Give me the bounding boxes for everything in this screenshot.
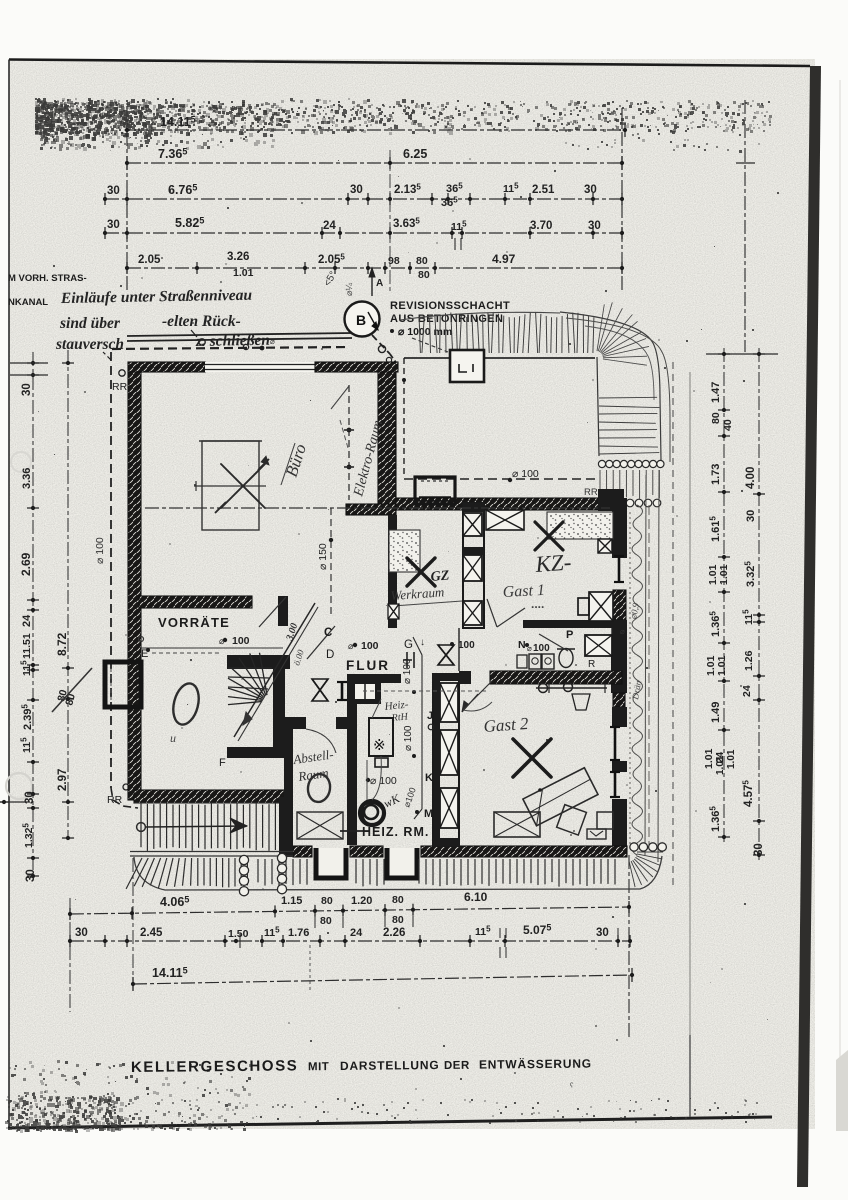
- svg-text:u: u: [170, 731, 176, 745]
- svg-text:VORRÄTE: VORRÄTE: [158, 615, 230, 630]
- svg-text:6.10: 6.10: [464, 890, 488, 904]
- svg-text:30: 30: [107, 219, 120, 231]
- svg-text:F: F: [219, 757, 226, 769]
- svg-text:24: 24: [741, 685, 753, 697]
- svg-text:2.51: 2.51: [532, 184, 555, 196]
- svg-text:1.73: 1.73: [710, 464, 722, 485]
- svg-text:HEIZ. RM.: HEIZ. RM.: [362, 825, 429, 839]
- svg-text:⌀ 100: ⌀ 100: [403, 725, 414, 751]
- svg-text:30: 30: [350, 184, 363, 196]
- svg-text:REVISIONSSCHACHT: REVISIONSSCHACHT: [390, 300, 510, 312]
- svg-text:100: 100: [458, 640, 475, 651]
- svg-text:KELLERGESCHOSS: KELLERGESCHOSS: [131, 1057, 299, 1076]
- svg-text:-elten Rück-: -elten Rück-: [162, 313, 241, 330]
- svg-text:2.97: 2.97: [57, 769, 69, 791]
- svg-text:100: 100: [232, 635, 250, 647]
- svg-text:30: 30: [753, 843, 765, 856]
- svg-text:80: 80: [321, 895, 333, 907]
- svg-text:30: 30: [75, 927, 88, 939]
- svg-text:100: 100: [533, 643, 550, 654]
- svg-text:K: K: [425, 772, 433, 784]
- svg-text:B: B: [356, 312, 366, 328]
- svg-text:2.69: 2.69: [19, 552, 33, 576]
- svg-text:M: M: [424, 808, 433, 820]
- svg-text:80: 80: [392, 894, 404, 906]
- svg-text:Gast 2: Gast 2: [483, 714, 530, 736]
- svg-text:G: G: [404, 639, 413, 651]
- svg-text:80: 80: [418, 269, 430, 281]
- svg-text:1.01: 1.01: [726, 749, 737, 769]
- svg-text:1.01: 1.01: [716, 655, 728, 676]
- svg-text:1.50: 1.50: [228, 928, 249, 940]
- svg-text:14.115: 14.115: [152, 966, 188, 981]
- svg-text:40: 40: [722, 419, 734, 431]
- svg-text:ˁ: ˁ: [570, 1081, 574, 1093]
- svg-text:A: A: [376, 278, 383, 289]
- svg-text:14.115: 14.115: [160, 115, 196, 130]
- svg-text:Einläufe unter Straßenniveau: Einläufe unter Straßenniveau: [60, 287, 253, 307]
- svg-text:30: 30: [25, 869, 37, 882]
- svg-text:J: J: [427, 710, 433, 722]
- svg-text:⌀ 150: ⌀ 150: [317, 543, 329, 570]
- svg-text:⌀: ⌀: [348, 641, 354, 651]
- svg-text:30: 30: [107, 185, 120, 197]
- svg-text:11.51: 11.51: [21, 633, 33, 659]
- svg-text:DARSTELLUNG: DARSTELLUNG: [340, 1058, 440, 1073]
- svg-text:2.05: 2.05: [138, 254, 161, 266]
- svg-text:RR: RR: [107, 794, 123, 806]
- svg-text:ENTWÄSSERUNG: ENTWÄSSERUNG: [479, 1056, 592, 1072]
- svg-text:⌀ 100: ⌀ 100: [512, 468, 539, 480]
- svg-text:M VORH. STRAS-: M VORH. STRAS-: [8, 273, 87, 284]
- svg-text:P: P: [566, 629, 573, 641]
- svg-text:80: 80: [416, 255, 428, 267]
- svg-text:※: ※: [373, 737, 386, 754]
- svg-text:⌀: ⌀: [620, 627, 625, 636]
- svg-text:1.20: 1.20: [351, 895, 372, 907]
- svg-text:stauversch: stauversch: [55, 336, 124, 353]
- svg-text:RR: RR: [112, 381, 128, 393]
- svg-text:3.26: 3.26: [227, 251, 249, 263]
- svg-text:FLUR: FLUR: [346, 658, 390, 673]
- svg-text:C: C: [324, 627, 332, 639]
- svg-text:D: D: [326, 649, 334, 661]
- svg-text:30: 30: [745, 510, 757, 522]
- svg-text:NKANAL: NKANAL: [8, 297, 48, 308]
- svg-text:30: 30: [588, 220, 601, 232]
- svg-text:24: 24: [323, 220, 336, 232]
- svg-text:100: 100: [361, 640, 379, 652]
- svg-text:⌀ 1000 mm: ⌀ 1000 mm: [398, 326, 452, 338]
- svg-text:GZ: GZ: [430, 568, 450, 585]
- svg-text:DER: DER: [444, 1060, 470, 1072]
- svg-text:MIT: MIT: [308, 1061, 329, 1073]
- svg-text:80: 80: [320, 915, 332, 927]
- svg-text:4.97: 4.97: [492, 252, 516, 266]
- svg-text:1.01: 1.01: [703, 748, 715, 769]
- svg-text:⌀ 100: ⌀ 100: [402, 658, 413, 684]
- svg-text:....: ....: [531, 597, 544, 611]
- svg-text:⌀ 100: ⌀ 100: [370, 775, 397, 787]
- svg-text:1.47: 1.47: [710, 382, 722, 403]
- svg-text:KZ-: KZ-: [534, 550, 572, 578]
- svg-text:3.36: 3.36: [21, 468, 33, 489]
- svg-text:⌀: ⌀: [527, 644, 532, 653]
- svg-text:24: 24: [350, 927, 363, 939]
- svg-text:3.70: 3.70: [530, 220, 552, 232]
- svg-text:2.45: 2.45: [140, 927, 163, 939]
- svg-text:2.26: 2.26: [383, 927, 405, 939]
- svg-text:30: 30: [584, 184, 597, 196]
- svg-text:4.00: 4.00: [745, 467, 757, 489]
- svg-text:N: N: [518, 639, 526, 651]
- svg-text:1.01: 1.01: [233, 267, 254, 279]
- svg-text:↓: ↓: [420, 637, 425, 648]
- svg-text:80: 80: [710, 412, 722, 424]
- svg-text:8.72: 8.72: [55, 632, 69, 656]
- svg-text:R: R: [588, 659, 595, 670]
- svg-text:1.26: 1.26: [743, 650, 755, 671]
- svg-text:⌀¼: ⌀¼: [344, 283, 354, 296]
- svg-text:1.76: 1.76: [288, 927, 309, 939]
- svg-text:1.49: 1.49: [710, 702, 722, 723]
- svg-text:30: 30: [596, 927, 609, 939]
- svg-text:⌀: ⌀: [219, 636, 225, 646]
- svg-text:1.15: 1.15: [281, 895, 302, 907]
- svg-text:30: 30: [21, 383, 33, 396]
- svg-text:sind über: sind über: [59, 315, 121, 332]
- svg-text:24: 24: [21, 614, 33, 627]
- svg-text:80: 80: [392, 914, 404, 926]
- svg-text:⌀: ⌀: [270, 337, 275, 346]
- svg-text:1.01: 1.01: [715, 755, 726, 775]
- svg-text:98: 98: [388, 255, 400, 267]
- svg-text:RR: RR: [584, 487, 598, 498]
- svg-text:⌀ 100: ⌀ 100: [94, 537, 106, 564]
- svg-text:6.25: 6.25: [403, 147, 427, 161]
- svg-text:1.01: 1.01: [718, 564, 730, 585]
